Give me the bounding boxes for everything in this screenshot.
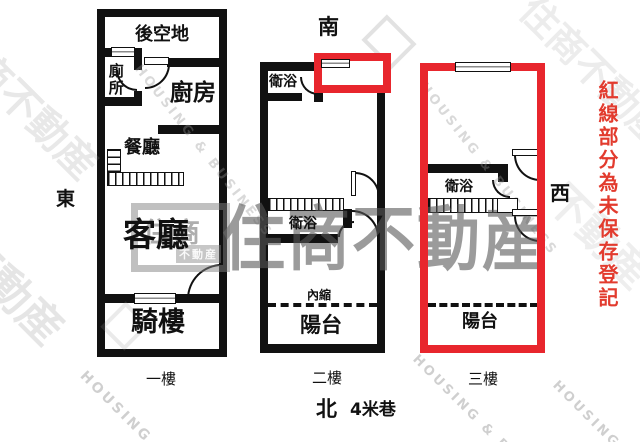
floor1-toilet-window-icon [111,47,135,57]
compass-east-label: 東 [56,190,75,210]
watermark-housing-bottomcenter: HOUSING & BUSINESS [409,352,572,442]
floor3-label: 三樓 [468,372,498,388]
floor1-arcade-window-icon [134,293,176,304]
floor1-arcade-label: 騎樓 [131,309,185,337]
floor2-stairs-icon [268,198,344,211]
floor2-bath-bottom-wall [268,93,302,101]
watermark-housing-bottomright: HOUSING & BUSINESS [549,378,640,442]
compass-west-label: 西 [550,183,570,204]
floor2-setback-label: 內縮 [307,289,331,302]
floorplan-canvas: 住商不動産 不動産 HOUSING & BUSINESS HOUSING & B… [0,0,640,442]
floor2-top-wall [260,62,320,71]
compass-north-label: 北 [316,398,337,420]
floor1-kitchen-top-wall [167,58,219,67]
floor2-balcony-label: 陽台 [300,314,342,336]
floor1-dining-label: 餐廳 [124,139,160,158]
floor2-bottom-wall [260,344,385,353]
floor1-kitchen-label: 廚房 [170,81,216,105]
floor2-bath-mid-wall [268,234,338,243]
floor1-living-label: 客廳 [123,218,189,253]
watermark-brand-left: 不動産 [0,218,81,357]
floor1-toilet-label: 廁所 [107,63,123,97]
floor3-red-outline [420,63,545,353]
floor2-setback-dashed-line [268,303,377,307]
compass-south-label: 南 [318,16,339,38]
floor1-stairs-upper-icon [107,149,121,173]
floor2-red-box-window-icon [321,59,350,68]
floor3-top-window-icon [455,62,511,72]
floor2-stair-door-leaf [351,171,356,196]
floor2-right-wall [377,85,385,353]
floor3-bath-label: 衛浴 [445,180,473,195]
floor1-rear-door-leaf [144,57,169,65]
floor2-left-wall [260,62,268,353]
floor2-label: 二樓 [312,371,342,387]
floor1-rear-open-space-label: 後空地 [135,26,189,45]
floor2-right-door-arc-icon [352,210,379,237]
floor3-balcony-label: 陽台 [462,313,498,332]
floor1-kitchen-bottom-wall [158,125,219,134]
floor1-label: 一樓 [146,372,176,388]
floor1-stairs-icon [107,172,184,186]
red-note-text: 紅線部分為未保存登記 [593,80,622,330]
floor2-bath-upper-label: 衛浴 [269,75,297,90]
floor2-bath-mid-label: 衛浴 [289,217,317,232]
floor1-toilet-bottom-wall [105,97,142,106]
street-label: 4米巷 [350,402,396,420]
